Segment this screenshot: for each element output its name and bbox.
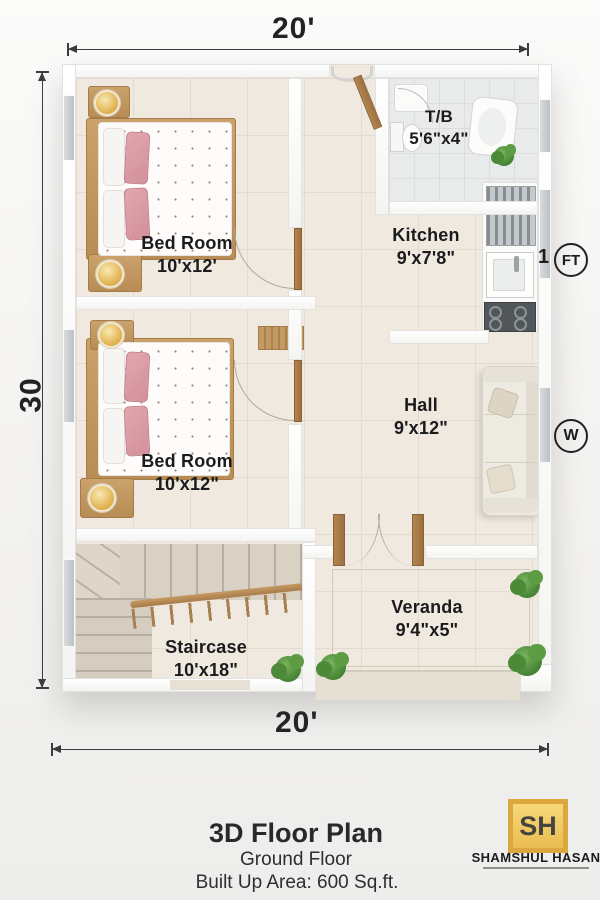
- brand-name: SHAMSHUL HASAN: [472, 850, 600, 865]
- window-bedroom2-icon: [64, 330, 74, 422]
- lamp-icon: [88, 484, 116, 512]
- floor-subtitle: Ground Floor: [240, 849, 352, 871]
- room-name: Veranda: [391, 596, 462, 619]
- dimension-top-line: [68, 49, 528, 50]
- wall-kitchen-hall: [389, 330, 489, 344]
- scale-unit-badge: FT: [554, 243, 588, 277]
- room-label-veranda: Veranda 9'4"x5": [391, 596, 462, 643]
- room-label-bedroom2: Bed Room 10'x12": [141, 450, 233, 497]
- arrow-left-icon: [52, 745, 61, 753]
- dimension-left-line: [42, 72, 43, 688]
- sofa-seam: [485, 462, 537, 463]
- burner-icon: [489, 318, 502, 331]
- arrow-down-icon: [38, 679, 46, 688]
- pillow: [103, 128, 125, 186]
- arrow-left-icon: [68, 45, 77, 53]
- sofa-back: [526, 368, 538, 512]
- sofa-armrest: [483, 367, 539, 382]
- arrow-right-icon: [519, 45, 528, 53]
- room-name: T/B: [409, 106, 468, 128]
- arrow-up-icon: [38, 72, 46, 81]
- room-label-bedroom1: Bed Room 10'x12': [141, 232, 233, 279]
- wall-hall-veranda-left: [302, 545, 335, 559]
- lamp-icon: [96, 260, 124, 288]
- sink-basin: [493, 259, 525, 291]
- wall-corridor-3: [288, 424, 302, 542]
- plant-icon: [512, 646, 542, 676]
- room-label-hall: Hall 9'x12": [394, 394, 448, 441]
- brand-logo: SH: [508, 799, 568, 853]
- dimension-left-label: 30: [15, 377, 49, 412]
- sofa-armrest: [483, 498, 539, 513]
- wall-bedroom2-staircase: [76, 528, 316, 542]
- room-size: 9'x12": [394, 417, 448, 440]
- wall-staircase-right: [302, 542, 316, 692]
- room-size: 5'6"x4": [409, 128, 468, 150]
- main-door-right-icon: [412, 514, 424, 566]
- wall-right: [538, 64, 552, 692]
- dimension-top-label: 20': [272, 12, 316, 46]
- range-hood-icon: [486, 186, 536, 246]
- room-size: 9'4"x5": [391, 619, 462, 642]
- room-name: Bed Room: [141, 450, 233, 473]
- area-note: Built Up Area: 600 Sq.ft.: [196, 872, 399, 894]
- window-bathroom-icon: [540, 100, 550, 152]
- wall-top-right: [374, 64, 552, 78]
- window-staircase-icon: [64, 560, 74, 646]
- room-size: 10'x18": [165, 659, 247, 682]
- dimension-bottom-label: 20': [275, 706, 319, 740]
- throw-pillow: [486, 464, 517, 495]
- lamp-icon: [98, 322, 124, 348]
- window-bedroom1-icon: [64, 96, 74, 160]
- burner-icon: [514, 318, 527, 331]
- floor-plan: Bed Room 10'x12' Bed Room 10'x12" T/B 5'…: [62, 64, 552, 692]
- room-label-staircase: Staircase 10'x18": [165, 636, 247, 683]
- brand-underline: [483, 867, 589, 869]
- plant-icon: [494, 146, 514, 166]
- room-label-kitchen: Kitchen 9'x7'8": [392, 224, 459, 271]
- bedroom1-door-icon: [294, 228, 302, 290]
- room-size: 10'x12': [141, 255, 233, 278]
- veranda-step: [316, 670, 520, 700]
- room-name: Bed Room: [141, 232, 233, 255]
- plant-icon: [320, 654, 346, 680]
- room-label-bathroom: T/B 5'6"x4": [409, 106, 468, 150]
- plant-icon: [275, 656, 301, 682]
- floor-plan-page: 20' 30 20': [0, 0, 600, 900]
- wall-bathroom-left: [375, 78, 389, 215]
- wall-top-left: [62, 64, 330, 78]
- scale-number: 1: [538, 246, 549, 269]
- pillow: [103, 190, 125, 248]
- pillow: [124, 405, 151, 456]
- faucet-icon: [514, 256, 519, 272]
- plant-icon: [514, 572, 540, 598]
- room-name: Hall: [394, 394, 448, 417]
- wall-bathroom-bottom: [389, 201, 538, 215]
- room-size: 10'x12": [141, 473, 233, 496]
- pillow: [103, 408, 125, 464]
- room-name: Staircase: [165, 636, 247, 659]
- wall-corridor-1: [288, 78, 302, 228]
- pillow: [103, 348, 125, 404]
- window-hall-icon: [540, 388, 550, 462]
- page-title: 3D Floor Plan: [209, 818, 383, 849]
- compass-west-badge: W: [554, 419, 588, 453]
- room-name: Kitchen: [392, 224, 459, 247]
- pillow: [124, 351, 151, 402]
- dimension-bottom-line: [52, 749, 548, 750]
- pillow: [124, 131, 151, 184]
- lamp-icon: [94, 90, 120, 116]
- wall-hall-veranda-right: [425, 545, 538, 559]
- bedroom2-door-icon: [294, 360, 302, 422]
- main-door-left-icon: [333, 514, 345, 566]
- wall-bedroom-divider: [76, 296, 316, 310]
- arrow-right-icon: [539, 745, 548, 753]
- room-size: 9'x7'8": [392, 247, 459, 270]
